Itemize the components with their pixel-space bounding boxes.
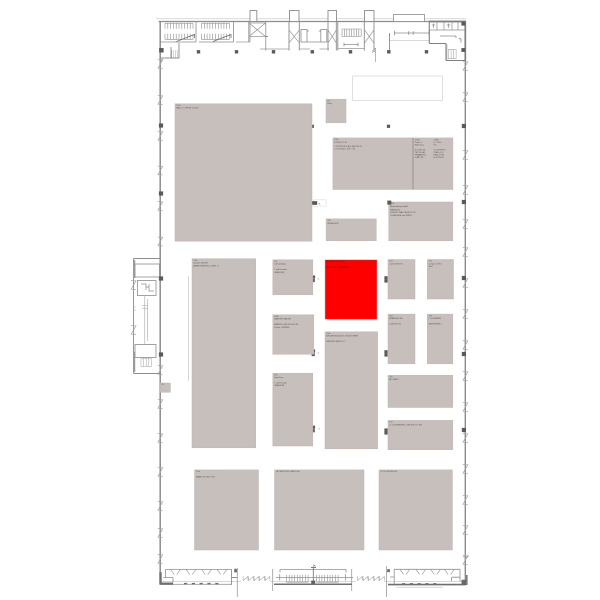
svg-text:Lampen 1 STU: Lampen 1 STU [429, 263, 442, 265]
svg-text:Brandhaus: Brandhaus [274, 376, 283, 379]
svg-text:161: 161 [389, 261, 392, 263]
svg-text:ARBEITSGESTELL GmbH - K: ARBEITSGESTELL GmbH - K [193, 264, 219, 267]
svg-text:L und WERBG: L und WERBG [429, 318, 442, 320]
svg-text:Studio K GROUP: Studio K GROUP [193, 262, 208, 265]
svg-text:ATELIER MODULE 1 STUDIO WERK: ATELIER MODULE 1 STUDIO WERK [326, 335, 359, 338]
svg-text:a.: a. [318, 278, 320, 281]
svg-text:GRAFIK BK: GRAFIK BK [274, 384, 285, 387]
svg-text:Wert: Wert [429, 265, 433, 268]
svg-text:T und Freunde: T und Freunde [274, 382, 286, 385]
svg-text:1 PORTFOLIO AG, SALTIG GL: 1 PORTFOLIO AG, SALTIG GL [334, 145, 363, 148]
svg-text:a.: a. [318, 352, 320, 355]
svg-text:1 Med Gh KG: 1 Med Gh KG [389, 323, 401, 325]
svg-text:M 31 TECH: M 31 TECH [434, 157, 444, 159]
svg-text:117: 117 [327, 100, 330, 102]
svg-text:155: 155 [274, 374, 277, 376]
svg-text:ALL WEST: ALL WEST [389, 378, 399, 381]
svg-text:OFFICE / MAIL SELECT KG: OFFICE / MAIL SELECT KG [390, 211, 416, 214]
svg-text:Mediendesign GmbH: Mediendesign GmbH [390, 206, 408, 208]
svg-text:a.: a. [319, 428, 321, 431]
svg-text:Tel ATELIER und PRINT: Tel ATELIER und PRINT [390, 214, 412, 217]
svg-text:a..: a.. [319, 203, 322, 206]
svg-text:173: 173 [429, 315, 432, 317]
svg-text:m und WERBUNG 1 GROUP 21 T WG: m und WERBUNG 1 GROUP 21 T WG [389, 424, 422, 426]
svg-text:17 B GmbH + KG / 1 KL: 17 B GmbH + KG / 1 KL [334, 148, 356, 150]
svg-text:T und Freunde: T und Freunde [274, 268, 286, 271]
svg-text:191 LICHTUNG KG: 191 LICHTUNG KG [380, 471, 397, 473]
svg-text:BRAND STUDIO 1 KG: BRAND STUDIO 1 KG [196, 476, 216, 479]
svg-text:167: 167 [389, 422, 392, 424]
svg-text:153b: 153b [274, 316, 278, 318]
svg-text:null workshop: null workshop [274, 263, 286, 266]
svg-text:K ART MY: K ART MY [415, 156, 424, 159]
svg-text:MASTER PLAN GR: MASTER PLAN GR [274, 318, 291, 321]
svg-text:Projekt 1 WERBG: Projekt 1 WERBG [274, 326, 290, 329]
svg-text:MALL 5 / OFFICE 21 oHG: MALL 5 / OFFICE 21 oHG [176, 107, 199, 110]
svg-text:MUSTER FIRMA 1 AG: MUSTER FIRMA 1 AG [326, 260, 346, 263]
svg-text:ARBEITS- UND STUDIO M1: ARBEITS- UND STUDIO M1 [274, 323, 298, 326]
svg-text:MEISTER WERK 21 T: MEISTER WERK 21 T [326, 341, 346, 343]
svg-text:Kuag: Kuag [327, 103, 331, 105]
svg-text:171: 171 [429, 261, 432, 263]
svg-text:BRANDING We: BRANDING We [389, 317, 402, 320]
svg-text:163: 163 [389, 315, 392, 317]
svg-text:181 METROPOLITAN 1 WG: 181 METROPOLITAN 1 WG [276, 470, 300, 473]
svg-text:GRAFIK BK: GRAFIK BK [274, 271, 285, 274]
svg-text:129: 129 [328, 220, 331, 222]
svg-text:165: 165 [389, 377, 392, 379]
svg-text:MEISTERWK 1: MEISTERWK 1 [429, 323, 442, 325]
svg-text:Elekk 12 g: Elekk 12 g [415, 145, 424, 147]
svg-text:INSTALLION: INSTALLION [328, 222, 340, 225]
svg-text:99: 99 [162, 384, 164, 386]
svg-text:MEDIA KG: MEDIA KG [390, 209, 400, 212]
svg-text:und n KOLN Gh: und n KOLN Gh [389, 263, 402, 265]
svg-text:STUDIO 1 LTD: STUDIO 1 LTD [334, 142, 347, 144]
svg-text:Showcase + LIGHTBAU W: Showcase + LIGHTBAU W [326, 265, 349, 268]
svg-text:151: 151 [274, 261, 277, 263]
